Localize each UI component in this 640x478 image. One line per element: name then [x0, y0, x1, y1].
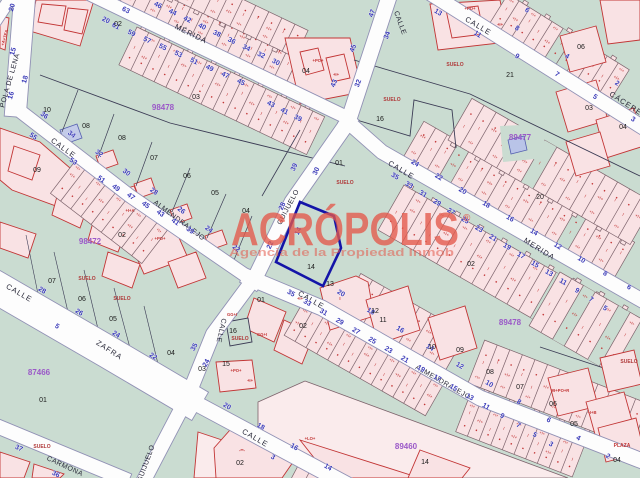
svg-text:06: 06	[78, 296, 86, 303]
svg-text:+LO+: +LO+	[305, 436, 316, 441]
svg-text:®: ®	[463, 213, 471, 224]
svg-text:PLAZA: PLAZA	[614, 443, 631, 449]
svg-text:01: 01	[257, 297, 265, 304]
svg-text:+I+: +I+	[497, 22, 504, 27]
svg-text:SUELO: SUELO	[383, 97, 400, 103]
svg-text:04: 04	[167, 350, 175, 357]
svg-text:11: 11	[379, 317, 386, 324]
svg-text:08: 08	[82, 123, 90, 130]
svg-text:+PO+: +PO+	[465, 6, 476, 11]
svg-text:07: 07	[150, 155, 158, 162]
svg-text:06: 06	[577, 44, 585, 51]
svg-text:08: 08	[486, 369, 494, 376]
svg-text:02: 02	[118, 232, 126, 239]
svg-text:14: 14	[307, 264, 315, 271]
svg-text:99+PO+R: 99+PO+R	[551, 388, 570, 393]
svg-text:Agencia de la Propiedad Inmob: Agencia de la Propiedad Inmob	[229, 247, 454, 259]
svg-text:14: 14	[421, 459, 429, 466]
svg-text:+I+B: +I+B	[587, 410, 596, 415]
svg-text:SUELO: SUELO	[620, 359, 637, 365]
svg-text:89478: 89478	[499, 318, 522, 327]
svg-text:04: 04	[613, 457, 621, 464]
svg-text:06: 06	[183, 173, 191, 180]
svg-text:02: 02	[236, 460, 244, 467]
svg-text:10: 10	[43, 107, 51, 114]
svg-text:04: 04	[619, 124, 627, 131]
svg-text:07: 07	[516, 384, 524, 391]
svg-text:+PO+: +PO+	[313, 58, 324, 63]
svg-text:02: 02	[467, 261, 475, 268]
svg-text:13: 13	[326, 281, 334, 288]
svg-text:05: 05	[109, 316, 117, 323]
svg-text:I: I	[339, 296, 340, 301]
svg-text:+I+: +I+	[247, 378, 254, 383]
svg-text:09: 09	[456, 347, 464, 354]
svg-text:98472: 98472	[79, 237, 102, 246]
svg-text:-**-: -**-	[239, 448, 246, 453]
svg-text:SUELO: SUELO	[78, 276, 95, 282]
svg-text:87466: 87466	[28, 368, 51, 377]
svg-text:05: 05	[570, 421, 578, 428]
svg-text:21: 21	[506, 72, 514, 79]
svg-text:08: 08	[118, 135, 126, 142]
svg-text:07: 07	[48, 278, 56, 285]
svg-text:89460: 89460	[395, 442, 418, 451]
svg-text:SUELO: SUELO	[33, 444, 50, 450]
svg-text:03: 03	[585, 105, 593, 112]
svg-text:03: 03	[192, 94, 200, 101]
svg-text:15: 15	[222, 361, 230, 368]
svg-text:02: 02	[114, 21, 122, 28]
svg-text:20: 20	[536, 194, 544, 201]
svg-text:01: 01	[39, 397, 47, 404]
svg-text:03: 03	[198, 366, 206, 373]
svg-text:98478: 98478	[152, 103, 175, 112]
svg-text:GG+I: GG+I	[227, 312, 237, 317]
svg-text:02: 02	[299, 323, 307, 330]
svg-text:05: 05	[211, 190, 219, 197]
svg-text:06: 06	[549, 401, 557, 408]
svg-text:+PO+: +PO+	[155, 236, 166, 241]
svg-text:12: 12	[371, 308, 379, 315]
svg-text:+PO+: +PO+	[231, 368, 242, 373]
svg-text:10: 10	[428, 344, 436, 351]
svg-text:SUELO: SUELO	[231, 336, 248, 342]
svg-text:01: 01	[335, 160, 343, 167]
svg-text:+I+: +I+	[333, 72, 340, 77]
svg-text:89477: 89477	[509, 133, 532, 142]
svg-text:SUELO: SUELO	[113, 296, 130, 302]
svg-text:16: 16	[229, 328, 237, 335]
svg-text:SUELO: SUELO	[336, 180, 353, 186]
svg-text:+I+A: +I+A	[125, 208, 134, 213]
svg-text:09: 09	[33, 167, 41, 174]
svg-text:SUELO: SUELO	[446, 62, 463, 68]
svg-text:04: 04	[302, 68, 310, 75]
svg-text:+I+: +I+	[297, 296, 304, 301]
svg-text:16: 16	[376, 116, 384, 123]
svg-text:GG+I: GG+I	[257, 332, 267, 337]
